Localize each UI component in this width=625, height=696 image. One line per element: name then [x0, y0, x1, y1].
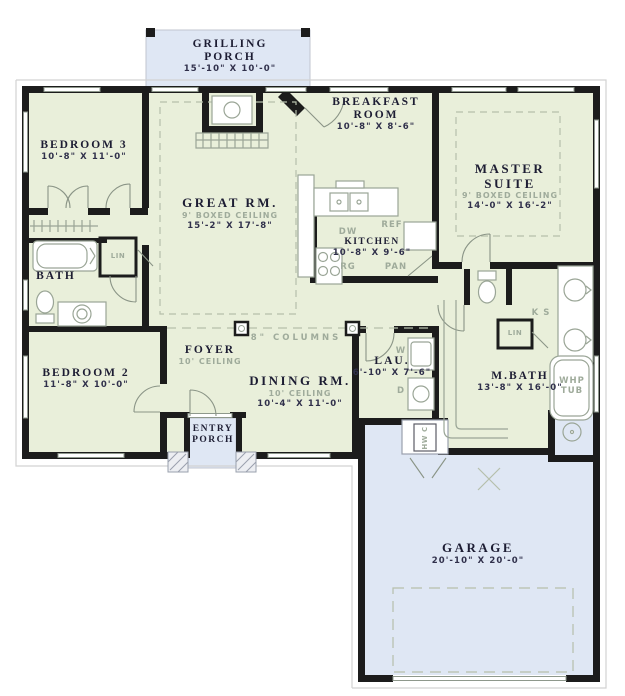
toilet-bowl [479, 281, 496, 303]
refrigerator-label: REF [381, 220, 402, 230]
range-label: RG [340, 262, 356, 272]
porch-post [301, 28, 310, 37]
water-heater-label: HW C [421, 426, 429, 449]
wall [326, 276, 438, 283]
column [346, 322, 359, 335]
whirlpool-label-2: TUB [561, 386, 583, 396]
washer-label: W [396, 346, 406, 356]
kitchen-bar-counter [298, 175, 314, 277]
dishwasher-label: DW [339, 227, 357, 237]
room-dims: 10'-8" X 8'-6" [332, 122, 419, 133]
dryer-label: D [397, 386, 405, 396]
label-great-room: GREAT RM. 9' BOXED CEILING 15'-2" X 17'-… [182, 196, 278, 232]
label-dining: DINING RM. 10' CEILING 10'-4" X 11'-0" [249, 374, 351, 410]
toilet-bowl [37, 291, 54, 313]
vanity [58, 302, 106, 326]
garage-door-opening [393, 677, 566, 681]
wall [160, 412, 167, 459]
label-bedroom2: BEDROOM 2 11'-8" X 10'-0" [42, 367, 129, 391]
wall [22, 326, 148, 332]
window [595, 120, 599, 188]
room-name: ENTRY [192, 424, 234, 435]
room-name: MASTER [462, 162, 558, 177]
room-dims: 11'-8" X 10'-0" [42, 380, 129, 391]
wall [22, 208, 48, 215]
label-laundry: LAU. 6'-10" X 7'-6" [353, 355, 432, 379]
room-dims: 20'-10" X 20'-0" [432, 556, 525, 567]
wall [358, 418, 365, 682]
window [44, 88, 100, 92]
window [595, 356, 599, 412]
room-dims: 13'-8" X 16'-0" [477, 383, 563, 394]
room-name: DINING RM. [249, 374, 351, 389]
wall [142, 93, 149, 208]
ceiling-note: 9' BOXED CEILING [182, 211, 278, 221]
room-dims: 15'-2" X 17'-8" [182, 221, 278, 232]
pantry-label: PAN [385, 262, 407, 272]
room-name: BREAKFAST [332, 96, 419, 109]
fireplace-wall [202, 126, 263, 133]
label-mbath: M.BATH 13'-8" X 16'-0" [477, 370, 563, 394]
window [24, 112, 28, 172]
room-name: KITCHEN [333, 237, 412, 248]
wall [22, 86, 600, 93]
floor-fills [29, 30, 593, 675]
room-name: FOYER [178, 344, 241, 357]
columns-note: 8" COLUMNS [251, 333, 341, 343]
window [24, 356, 28, 418]
ceiling-note: 10' CEILING [178, 357, 241, 367]
wall [130, 208, 148, 215]
label-master-suite: MASTER SUITE 9' BOXED CEILING 14'-0" X 1… [462, 162, 558, 212]
room-dims: 10'-4" X 11'-0" [249, 399, 351, 410]
column [235, 322, 248, 335]
label-kitchen: KITCHEN 10'-8" X 9'-6" [333, 237, 412, 259]
label-foyer: FOYER 10' CEILING [178, 344, 241, 367]
toilet-tank [478, 271, 496, 280]
entry-porch-wall [184, 412, 190, 458]
ceiling-note: 10' CEILING [249, 389, 351, 399]
knee-space-label: K S [532, 308, 551, 318]
window [452, 88, 506, 92]
dryer [408, 378, 434, 410]
label-entry-porch: ENTRY PORCH [192, 424, 234, 445]
room-name: M.BATH [477, 370, 563, 383]
room-name: GREAT RM. [182, 196, 278, 211]
mbath-vanity [558, 266, 593, 362]
room-name: BEDROOM 3 [40, 139, 127, 152]
linen-label-mbath: LIN [508, 329, 522, 337]
whirlpool-label-1: WHP [559, 376, 585, 386]
room-name: PORCH [192, 435, 234, 446]
kitchen-sink-counter [314, 188, 398, 216]
ceiling-note: 9' BOXED CEILING [462, 191, 558, 201]
kitchen-window-ledge [336, 181, 364, 188]
window [330, 88, 388, 92]
wall [548, 455, 600, 462]
shower-drain [571, 431, 574, 434]
wall [464, 269, 470, 305]
label-bath: BATH [36, 270, 76, 283]
room-name: GRILLING [184, 38, 277, 51]
porch-post [146, 28, 155, 37]
window [266, 88, 306, 92]
window [58, 454, 124, 458]
fireplace-box [212, 96, 252, 124]
room-dims: 10'-8" X 11'-0" [40, 152, 127, 163]
entry-porch-wall [236, 412, 242, 458]
entry-door-opening [188, 414, 232, 418]
wall [438, 262, 462, 269]
label-breakfast: BREAKFAST ROOM 10'-8" X 8'-6" [332, 96, 419, 133]
wall [438, 448, 555, 455]
room-name: PORCH [184, 51, 277, 64]
room-name: ROOM [332, 109, 419, 122]
room-dims: 14'-0" X 16'-2" [462, 201, 558, 212]
window [518, 88, 574, 92]
toilet-tank [36, 314, 54, 323]
wall [394, 326, 438, 333]
wall [506, 269, 512, 305]
window [152, 88, 198, 92]
room-name: GARAGE [432, 541, 525, 556]
room-dims: 15'-10" X 10'-0" [184, 64, 277, 75]
room-dims: 6'-10" X 7'-6" [353, 368, 432, 379]
linen-label-bath: LIN [111, 252, 125, 260]
label-bedroom3: BEDROOM 3 10'-8" X 11'-0" [40, 139, 127, 163]
label-grilling-porch: GRILLING PORCH 15'-10" X 10'-0" [184, 38, 277, 75]
window [268, 454, 330, 458]
floor-plan: GRILLING PORCH 15'-10" X 10'-0" BREAKFAS… [0, 0, 625, 696]
wall [358, 675, 393, 682]
floor-plan-drawing [0, 0, 625, 696]
label-garage: GARAGE 20'-10" X 20'-0" [432, 541, 525, 567]
wall [352, 326, 359, 452]
window [24, 280, 28, 310]
wall [160, 326, 167, 384]
room-name: SUITE [462, 177, 558, 192]
wall [88, 208, 110, 215]
room-name: BATH [36, 270, 76, 283]
room-name: LAU. [353, 355, 432, 368]
room-dims: 10'-8" X 9'-6" [333, 248, 412, 259]
room-name: BEDROOM 2 [42, 367, 129, 380]
